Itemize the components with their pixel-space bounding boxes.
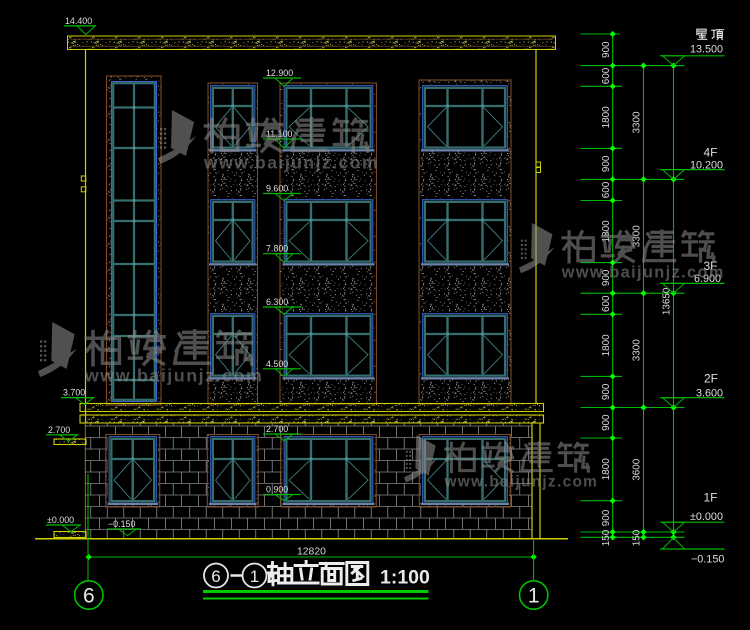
svg-text:600: 600	[601, 181, 612, 198]
svg-text:13650: 13650	[661, 287, 672, 315]
svg-text:6: 6	[83, 585, 95, 608]
svg-text:2.700: 2.700	[48, 425, 70, 435]
svg-text:1F: 1F	[704, 491, 718, 505]
svg-text:±0.000: ±0.000	[690, 511, 723, 523]
svg-text:www.baijunjz.com: www.baijunjz.com	[84, 366, 263, 386]
svg-text:9.600: 9.600	[266, 184, 288, 194]
svg-text:www.baijunjz.com: www.baijunjz.com	[444, 474, 599, 491]
svg-text:13.500: 13.500	[690, 44, 723, 56]
svg-text:6.300: 6.300	[266, 297, 288, 307]
svg-text:900: 900	[601, 414, 612, 431]
svg-text:900: 900	[601, 41, 612, 58]
svg-text:1800: 1800	[601, 458, 612, 480]
svg-text:600: 600	[601, 67, 612, 84]
svg-text:600: 600	[601, 295, 612, 312]
svg-text:12.900: 12.900	[266, 68, 293, 78]
svg-text:1: 1	[528, 585, 540, 608]
svg-text:150: 150	[601, 529, 612, 546]
svg-text:900: 900	[601, 155, 612, 172]
svg-text:www.baijunjz.com: www.baijunjz.com	[203, 153, 379, 173]
svg-text:900: 900	[601, 509, 612, 526]
svg-text:4.500: 4.500	[266, 359, 288, 369]
svg-text:14.400: 14.400	[65, 16, 92, 26]
svg-text:1: 1	[250, 567, 259, 586]
svg-text:2F: 2F	[704, 372, 718, 386]
svg-text:2.700: 2.700	[266, 424, 288, 434]
svg-text:1800: 1800	[601, 106, 612, 128]
svg-text:4F: 4F	[704, 146, 718, 160]
svg-text:7.800: 7.800	[266, 244, 288, 254]
svg-text:1:100: 1:100	[380, 567, 430, 589]
svg-text:3600: 3600	[631, 458, 642, 480]
svg-text:www.baijunjz.com: www.baijunjz.com	[561, 263, 725, 281]
svg-text:−0.150: −0.150	[108, 519, 135, 529]
svg-text:−0.150: −0.150	[691, 554, 724, 566]
svg-text:3300: 3300	[631, 111, 642, 133]
svg-text:900: 900	[601, 383, 612, 400]
svg-text:±0.000: ±0.000	[47, 515, 74, 525]
svg-text:3.700: 3.700	[63, 388, 85, 398]
svg-text:12820: 12820	[297, 547, 326, 558]
svg-text:3300: 3300	[631, 339, 642, 361]
svg-text:1800: 1800	[601, 334, 612, 356]
svg-text:0.900: 0.900	[266, 485, 288, 495]
svg-text:6: 6	[211, 567, 220, 586]
svg-text:150: 150	[631, 529, 642, 546]
